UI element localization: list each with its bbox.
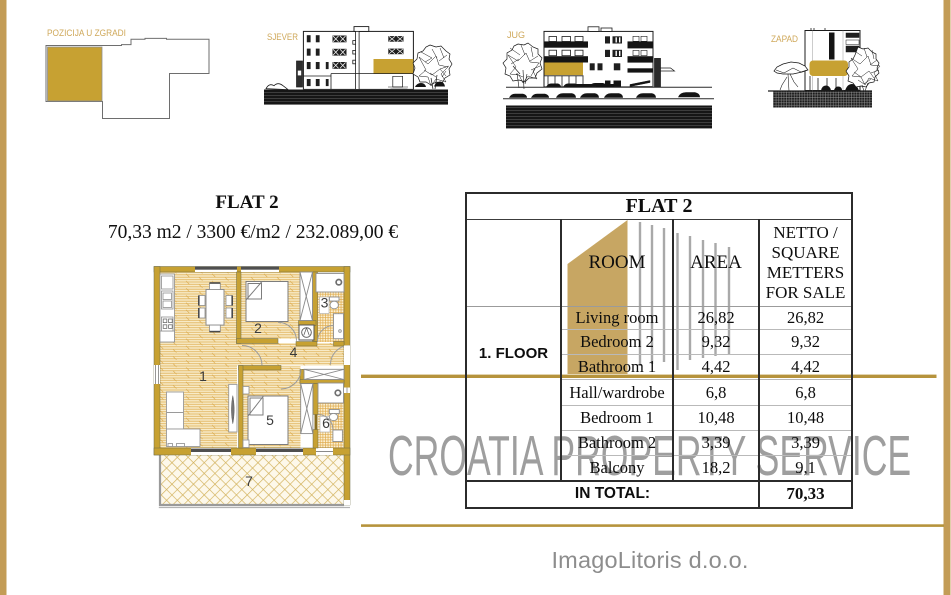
svg-text:SJEVER: SJEVER	[267, 32, 298, 43]
svg-text:POZICIJA U ZGRADI: POZICIJA U ZGRADI	[47, 28, 126, 39]
svg-text:5: 5	[266, 412, 274, 428]
svg-text:2: 2	[254, 320, 262, 336]
svg-text:ZAPAD: ZAPAD	[771, 34, 798, 45]
svg-text:7: 7	[245, 473, 253, 489]
svg-text:4: 4	[290, 344, 298, 360]
svg-text:1: 1	[199, 368, 207, 384]
svg-text:JUG: JUG	[507, 30, 525, 41]
svg-text:3: 3	[321, 295, 329, 311]
svg-text:6: 6	[322, 415, 330, 431]
